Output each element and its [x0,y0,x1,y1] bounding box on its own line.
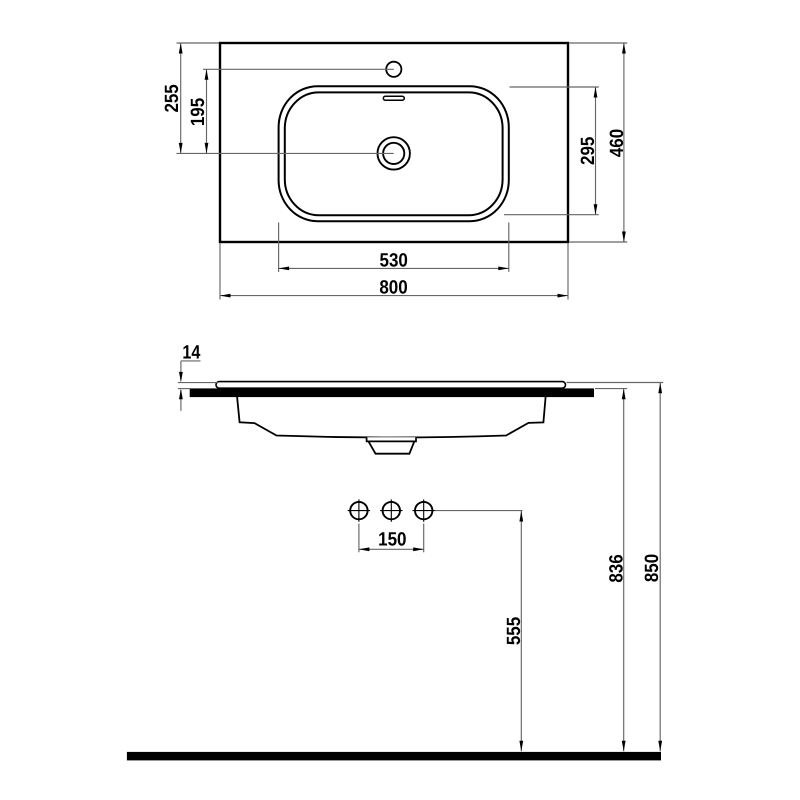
svg-text:460: 460 [607,129,628,157]
svg-text:195: 195 [188,98,209,127]
svg-text:295: 295 [578,136,599,165]
svg-text:836: 836 [606,554,627,582]
svg-text:14: 14 [182,342,200,363]
svg-text:850: 850 [642,554,663,582]
svg-text:555: 555 [504,617,525,646]
svg-text:530: 530 [380,251,408,272]
svg-text:150: 150 [378,530,406,551]
svg-text:255: 255 [162,84,183,113]
svg-text:800: 800 [379,278,407,299]
